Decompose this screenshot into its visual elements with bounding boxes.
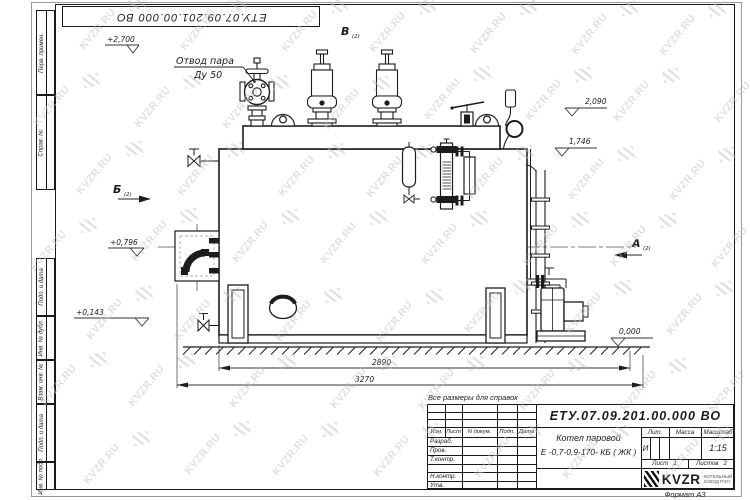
tb-row-tkontr: Т.контр.: [428, 455, 461, 464]
tb-sheets-value: 2: [724, 460, 727, 467]
tb-line: [517, 405, 518, 490]
level-2090: 2,090: [585, 97, 607, 106]
dim-2890: 2890: [372, 358, 391, 367]
tb-col-izm: Изм.: [428, 427, 445, 437]
view-label-a: А: [631, 237, 641, 250]
reference-note: Все размеры для справок: [428, 393, 568, 402]
tb-row-prov: Пров.: [428, 446, 461, 455]
tb-row-utv: Утв.: [428, 481, 461, 490]
tb-scale-label: Масштаб: [701, 427, 735, 437]
tb-row-razrab: Разраб.: [428, 437, 461, 446]
steam-outlet-label-2: Ду 50: [193, 70, 222, 81]
tb-col-list: Лист: [445, 427, 462, 437]
tb-lit-label: Лит.: [641, 427, 669, 437]
t-sheets-label: Листов: [696, 460, 719, 467]
tb-lit-value: И: [641, 437, 650, 459]
tb-line: [650, 437, 651, 459]
tb-sheets: Листов 2: [688, 459, 735, 468]
company-name: KVZR: [662, 472, 701, 487]
tb-line: [428, 412, 536, 413]
tb-line: [428, 464, 536, 465]
steam-outlet-valve: [240, 58, 274, 126]
view-ref-a: (2): [643, 246, 651, 252]
view-label-v: В: [341, 25, 349, 38]
view-label-b: Б: [113, 183, 121, 196]
ground-line: [183, 347, 650, 355]
ground-hatch: [183, 348, 641, 355]
level-1746: 1,746: [569, 137, 591, 146]
steam-outlet-label-1: Отвод пара: [176, 56, 234, 67]
item-name-line2: Е -0,7-0,9-170- КБ ( ЖК ): [536, 445, 641, 459]
dim-3270: 3270: [355, 375, 374, 384]
tb-sheet-label: Лист: [652, 460, 668, 467]
pressure-gauge: [504, 90, 523, 149]
drain-valve: [198, 314, 219, 332]
tb-col-data: Дата: [517, 427, 536, 437]
view-ref-b: (2): [124, 192, 132, 198]
tb-line: [659, 437, 660, 459]
company-cell: KVZR КОТЕЛЬНЫЙ ЗАВОД РЭП: [641, 468, 735, 490]
kvzr-logo-icon: [644, 471, 659, 487]
company-subtitle: КОТЕЛЬНЫЙ ЗАВОД РЭП: [703, 474, 732, 485]
tb-mass-label: Масса: [669, 427, 701, 437]
tb-line: [497, 405, 498, 490]
level-0143: +0,143: [76, 308, 104, 317]
air-valve: [188, 149, 219, 167]
view-ref-v: (2): [352, 34, 360, 40]
safety-valve-1: [308, 50, 337, 126]
tb-row-nkontr: Н.контр.: [428, 472, 461, 481]
tb-line: [536, 468, 641, 469]
safety-valve-2: [373, 50, 402, 126]
tb-col-podp: Подп.: [497, 427, 517, 437]
boiler-shell: [219, 126, 527, 343]
tb-line: [428, 419, 536, 420]
tb-sheet: Лист 1: [641, 459, 688, 468]
level-0000: 0,000: [619, 327, 641, 336]
level-0796: +0,796: [110, 238, 138, 247]
burner-box: [175, 231, 219, 281]
tb-col-docnum: N докум.: [462, 427, 497, 437]
tb-sheet-value: 1: [673, 460, 676, 467]
level-2700: +2,700: [107, 35, 135, 44]
company-sub-2: ЗАВОД РЭП: [703, 479, 732, 484]
tb-scale-value: 1:15: [701, 437, 735, 459]
tb-line: [462, 405, 463, 490]
doc-number: ЕТУ.07.09.201.00.000 ВО: [536, 405, 735, 427]
manhole: [270, 297, 297, 319]
title-block: ЕТУ.07.09.201.00.000 ВО Котел паровой Е …: [427, 404, 734, 489]
steam-drum: [243, 126, 500, 149]
format-label: Формат А3: [630, 490, 740, 499]
item-name-line1: Котел паровой: [536, 431, 641, 445]
